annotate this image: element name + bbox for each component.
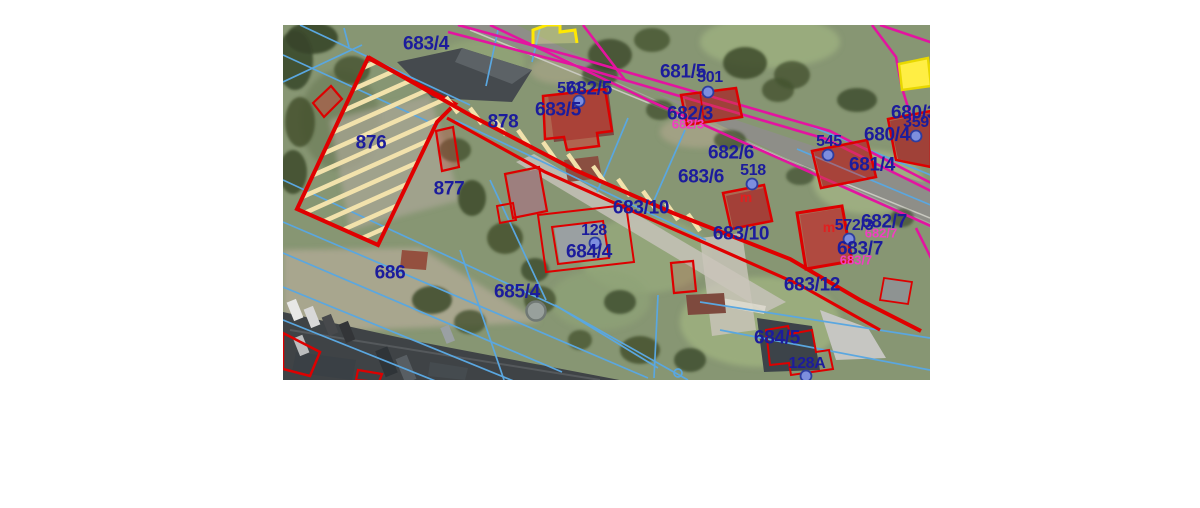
well-circle bbox=[527, 302, 546, 321]
address-point-518[interactable] bbox=[747, 179, 758, 190]
address-point-128[interactable] bbox=[590, 238, 601, 249]
address-point-545[interactable] bbox=[823, 150, 834, 161]
address-point-128A[interactable] bbox=[801, 371, 812, 381]
yellow-parcel-topright bbox=[899, 58, 930, 90]
address-point-571[interactable] bbox=[574, 96, 585, 107]
map-viewport[interactable]: 683/4682/5683/5878876877681/5682/3682/36… bbox=[283, 25, 930, 380]
address-point-572-3[interactable] bbox=[844, 234, 855, 245]
address-point-501[interactable] bbox=[703, 87, 714, 98]
address-point-359[interactable] bbox=[911, 131, 922, 142]
map-canvas bbox=[283, 25, 930, 380]
